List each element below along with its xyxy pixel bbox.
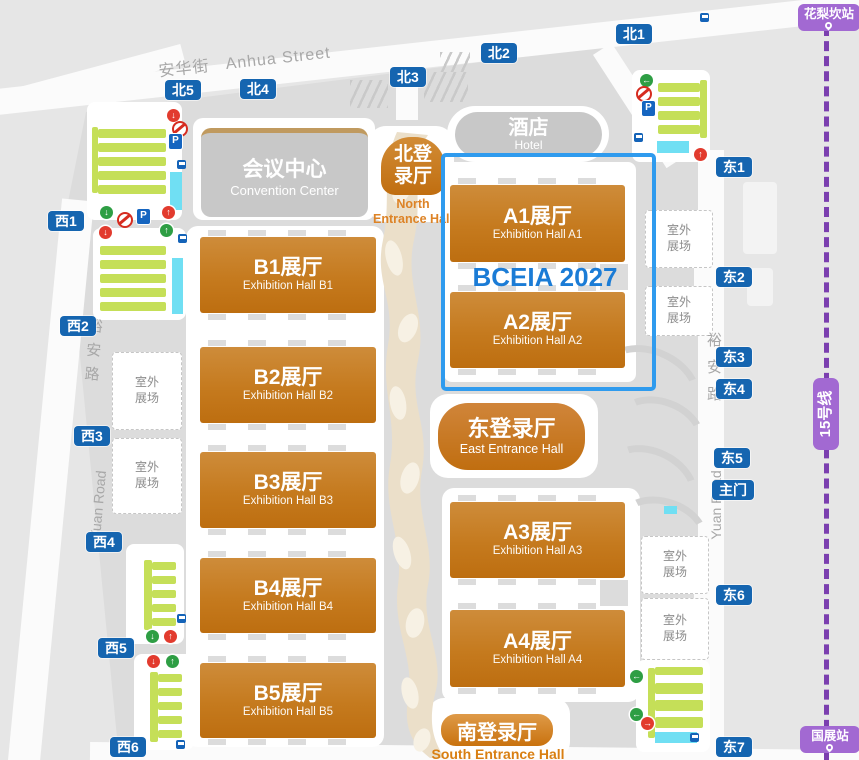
bus-stop-icon <box>177 160 186 169</box>
hall-b3-label-en: Exhibition Hall B3 <box>200 495 376 509</box>
hall-b1-label-zh: B1展厅 <box>200 256 376 280</box>
entry-up-arrow-icon: ↑ <box>160 224 173 237</box>
entry-down-arrow-icon: ↓ <box>100 206 113 219</box>
bus-stop-icon <box>690 733 699 742</box>
north3-stub-road <box>396 82 418 120</box>
hall-b4-label-zh: B4展厅 <box>200 577 376 601</box>
hotel-label-zh: 酒店 <box>455 118 602 138</box>
parking-sign-icon: P <box>168 133 183 150</box>
venue-map: 安华街 Anhua Street 裕安路 Yuan Road 裕安路 Yuan … <box>0 0 859 760</box>
station-guozhan[interactable]: 国展站 <box>800 726 859 753</box>
station-pin-icon <box>825 742 835 752</box>
gate-east-1[interactable]: 东1 <box>716 157 752 177</box>
hotel[interactable]: 酒店 Hotel <box>455 112 602 157</box>
parking-sign-icon: P <box>136 208 151 225</box>
hatch-marks-icon <box>424 72 468 102</box>
bus-stop-icon <box>177 614 186 623</box>
bus-stop-icon <box>178 234 187 243</box>
building-slab <box>743 182 777 254</box>
drop-zone-strip <box>657 141 689 153</box>
hall-b3-label-zh: B3展厅 <box>200 471 376 495</box>
hall-a4[interactable]: A4展厅 Exhibition Hall A4 <box>450 610 625 687</box>
exit-up-arrow-icon: ↑ <box>694 148 707 161</box>
hall-b4-label-en: Exhibition Hall B4 <box>200 601 376 615</box>
gate-north-2[interactable]: 北2 <box>481 43 517 63</box>
hall-b1-label-en: Exhibition Hall B1 <box>200 280 376 294</box>
yuan-road-west <box>7 198 94 760</box>
entry-left-arrow-icon: ← <box>640 74 653 87</box>
gate-west-1[interactable]: 西1 <box>48 211 84 231</box>
event-label[interactable]: BCEIA 2027 <box>460 262 630 293</box>
hall-a4-label-en: Exhibition Hall A4 <box>450 654 625 668</box>
station-hualikan[interactable]: 花梨坎站 <box>798 4 859 31</box>
exit-right-arrow-icon: → <box>641 717 654 730</box>
convention-center[interactable]: 会议中心 Convention Center <box>201 128 368 217</box>
hall-b2[interactable]: B2展厅 Exhibition Hall B2 <box>200 347 376 423</box>
exit-down-arrow-icon: ↓ <box>167 109 180 122</box>
outdoor-area: 室外展场 <box>112 438 182 514</box>
south-entrance-label-zh: 南登录厅 <box>457 716 537 745</box>
yuan-road-east-label-zh: 裕安路 <box>703 332 724 413</box>
exit-down-arrow-icon: ↓ <box>147 655 160 668</box>
hatch-marks-icon <box>440 52 470 72</box>
hall-a3-label-en: Exhibition Hall A3 <box>450 545 625 559</box>
east-entrance-label-en: East Entrance Hall <box>438 442 585 456</box>
parking-sign-icon: P <box>641 100 656 117</box>
entry-up-arrow-icon: ↑ <box>166 655 179 668</box>
east-entrance-hall[interactable]: 东登录厅 East Entrance Hall <box>438 403 585 470</box>
bus-stop-icon <box>700 13 709 22</box>
drop-zone-strip <box>664 506 677 514</box>
metro-line-15-badge: 15号线 <box>813 378 839 450</box>
entry-left-arrow-icon: ← <box>630 670 643 683</box>
gate-north-4[interactable]: 北4 <box>240 79 276 99</box>
hatch-marks-icon <box>350 80 388 108</box>
north-entrance-hall[interactable]: 北登 录厅 <box>381 137 445 195</box>
hall-b5-label-zh: B5展厅 <box>200 682 376 706</box>
drop-zone-strip <box>170 172 182 210</box>
gate-west-4[interactable]: 西4 <box>86 532 122 552</box>
hall-a4-label-zh: A4展厅 <box>450 630 625 654</box>
convention-center-label-en: Convention Center <box>201 183 368 198</box>
hall-b5[interactable]: B5展厅 Exhibition Hall B5 <box>200 663 376 738</box>
bus-stop-icon <box>176 740 185 749</box>
gate-east-6[interactable]: 东6 <box>716 585 752 605</box>
north-entrance-label-zh1: 北登 <box>381 144 445 166</box>
outdoor-area: 室外展场 <box>641 536 709 594</box>
east-entrance-label-zh: 东登录厅 <box>438 417 585 441</box>
hall-b1[interactable]: B1展厅 Exhibition Hall B1 <box>200 237 376 313</box>
gate-west-3[interactable]: 西3 <box>74 426 110 446</box>
exit-up-arrow-icon: ↑ <box>164 630 177 643</box>
hall-b4[interactable]: B4展厅 Exhibition Hall B4 <box>200 558 376 633</box>
hall-b3[interactable]: B3展厅 Exhibition Hall B3 <box>200 452 376 528</box>
hotel-label-en: Hotel <box>455 138 602 152</box>
gate-main[interactable]: 主门 <box>712 480 754 500</box>
gate-east-2[interactable]: 东2 <box>716 267 752 287</box>
gate-west-2[interactable]: 西2 <box>60 316 96 336</box>
hall-b5-label-en: Exhibition Hall B5 <box>200 706 376 720</box>
hall-a3[interactable]: A3展厅 Exhibition Hall A3 <box>450 502 625 578</box>
entry-down-arrow-icon: ↓ <box>146 630 159 643</box>
south-entrance-label-en: South Entrance Hall <box>418 746 578 760</box>
drop-zone-strip <box>172 258 183 314</box>
hall-b2-label-zh: B2展厅 <box>200 366 376 390</box>
outdoor-area: 室外展场 <box>112 352 182 430</box>
gate-east-7[interactable]: 东7 <box>716 737 752 757</box>
outdoor-area: 室外展场 <box>641 598 709 660</box>
gate-north-1[interactable]: 北1 <box>616 24 652 44</box>
convention-center-label-zh: 会议中心 <box>201 153 368 183</box>
gate-north-5[interactable]: 北5 <box>165 80 201 100</box>
hall-a3-label-zh: A3展厅 <box>450 521 625 545</box>
bus-stop-icon <box>634 133 643 142</box>
gate-east-4[interactable]: 东4 <box>716 379 752 399</box>
gate-west-5[interactable]: 西5 <box>98 638 134 658</box>
gate-east-5[interactable]: 东5 <box>714 448 750 468</box>
gate-north-3[interactable]: 北3 <box>390 67 426 87</box>
gate-east-3[interactable]: 东3 <box>716 347 752 367</box>
hall-b2-label-en: Exhibition Hall B2 <box>200 390 376 404</box>
station-pin-icon <box>824 20 834 30</box>
north-entrance-label-zh2: 录厅 <box>381 166 445 188</box>
south-entrance-hall[interactable]: 南登录厅 <box>438 711 556 749</box>
exit-down-arrow-icon: ↓ <box>99 226 112 239</box>
hall-connector <box>600 580 628 606</box>
no-entry-icon <box>117 212 133 228</box>
exit-up-arrow-icon: ↑ <box>162 206 175 219</box>
gate-west-6[interactable]: 西6 <box>110 737 146 757</box>
